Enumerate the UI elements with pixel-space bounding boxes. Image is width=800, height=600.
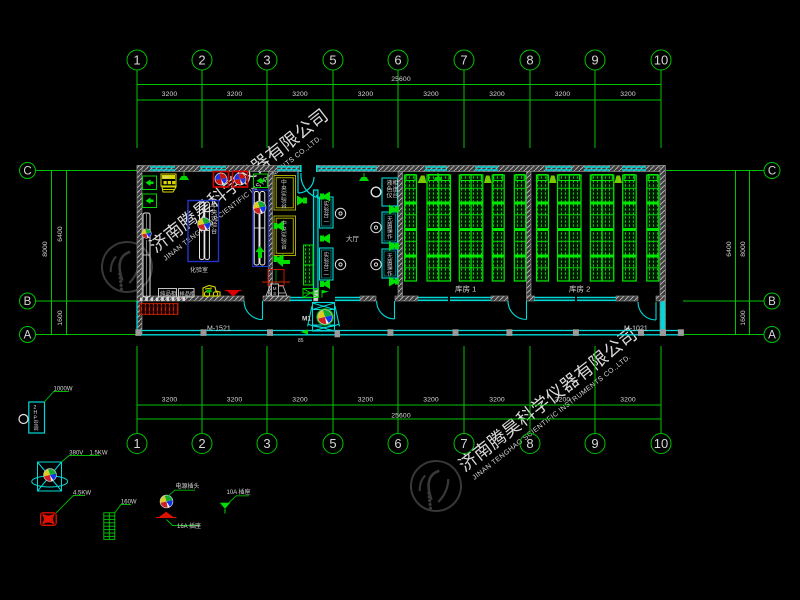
svg-text:2: 2 (198, 53, 205, 68)
svg-text:A: A (24, 330, 32, 342)
svg-text:5: 5 (329, 436, 336, 451)
svg-text:6400: 6400 (57, 226, 64, 242)
svg-text:4.5KW: 4.5KW (73, 491, 91, 497)
svg-text:8: 8 (526, 436, 533, 451)
svg-text:380V: 380V (69, 451, 83, 457)
svg-text:10: 10 (654, 436, 668, 451)
svg-text:2: 2 (198, 436, 205, 451)
svg-text:3200: 3200 (227, 397, 243, 404)
svg-text:7: 7 (460, 436, 467, 451)
svg-text:MAX: MAX (163, 176, 171, 180)
svg-text:C: C (23, 166, 31, 178)
svg-text:3200: 3200 (555, 91, 571, 98)
svg-text:纯品柜: 纯品柜 (160, 289, 177, 297)
svg-text:化验室: 化验室 (190, 266, 208, 274)
svg-text:无菌操作: 无菌操作 (387, 253, 393, 277)
svg-text:3200: 3200 (358, 397, 374, 404)
svg-text:样品柜: 样品柜 (180, 289, 196, 297)
svg-text:3200: 3200 (620, 397, 636, 404)
svg-text:1600: 1600 (57, 310, 64, 326)
svg-text:3200: 3200 (227, 91, 243, 98)
svg-text:3200: 3200 (555, 397, 571, 404)
svg-text:M1: M1 (302, 316, 311, 323)
svg-text:中央实验台: 中央实验台 (211, 202, 218, 236)
svg-text:3200: 3200 (423, 397, 439, 404)
svg-text:库房 2: 库房 2 (569, 284, 590, 294)
svg-text:7: 7 (460, 53, 467, 68)
svg-text:B: B (24, 296, 32, 308)
svg-text:电源插头: 电源插头 (176, 482, 200, 490)
svg-text:3: 3 (263, 436, 270, 451)
svg-text:9: 9 (591, 436, 598, 451)
svg-text:25600: 25600 (391, 76, 411, 83)
svg-text:3200: 3200 (162, 91, 178, 98)
svg-text:8000: 8000 (740, 241, 747, 257)
svg-text:实验台二: 实验台二 (323, 251, 329, 276)
svg-text:M-1521: M-1521 (207, 326, 231, 333)
svg-text:液相色谱仪台: 液相色谱仪台 (387, 179, 399, 200)
svg-text:9: 9 (591, 53, 598, 68)
svg-text:3200: 3200 (292, 397, 308, 404)
svg-text:无菌操作: 无菌操作 (387, 216, 393, 240)
svg-text:1: 1 (133, 436, 140, 451)
svg-text:85: 85 (298, 338, 304, 344)
svg-text:1600: 1600 (740, 310, 747, 326)
svg-text:实验台一: 实验台一 (323, 200, 329, 225)
svg-text:3200: 3200 (162, 397, 178, 404)
svg-text:10: 10 (654, 53, 668, 68)
svg-text:5: 5 (329, 53, 336, 68)
svg-text:8: 8 (526, 53, 533, 68)
svg-text:库房 1: 库房 1 (455, 284, 476, 294)
svg-text:1.5KW: 1.5KW (90, 451, 108, 457)
svg-text:大厅: 大厅 (346, 234, 360, 243)
svg-text:16A 插座: 16A 插座 (177, 522, 201, 530)
svg-text:M-1021: M-1021 (624, 326, 648, 333)
svg-text:3200: 3200 (292, 91, 308, 98)
svg-text:6400: 6400 (726, 241, 733, 257)
svg-text:C: C (768, 166, 776, 178)
svg-text:3200: 3200 (489, 397, 505, 404)
svg-text:6: 6 (394, 53, 401, 68)
svg-text:B: B (768, 296, 776, 308)
svg-text:3200: 3200 (489, 91, 505, 98)
svg-text:中央实验台: 中央实验台 (281, 178, 287, 210)
svg-text:1000W: 1000W (54, 387, 73, 393)
svg-text:8000: 8000 (42, 241, 49, 257)
svg-text:10A 插座: 10A 插座 (227, 488, 251, 496)
svg-text:25600: 25600 (391, 413, 411, 420)
svg-text:1: 1 (133, 53, 140, 68)
svg-text:6: 6 (394, 436, 401, 451)
svg-text:A: A (768, 330, 776, 342)
svg-text:160W: 160W (121, 500, 137, 506)
svg-text:3200: 3200 (620, 91, 636, 98)
svg-text:S: S (273, 291, 276, 296)
svg-text:3200: 3200 (423, 91, 439, 98)
svg-text:3200: 3200 (358, 91, 374, 98)
svg-text:3: 3 (263, 53, 270, 68)
